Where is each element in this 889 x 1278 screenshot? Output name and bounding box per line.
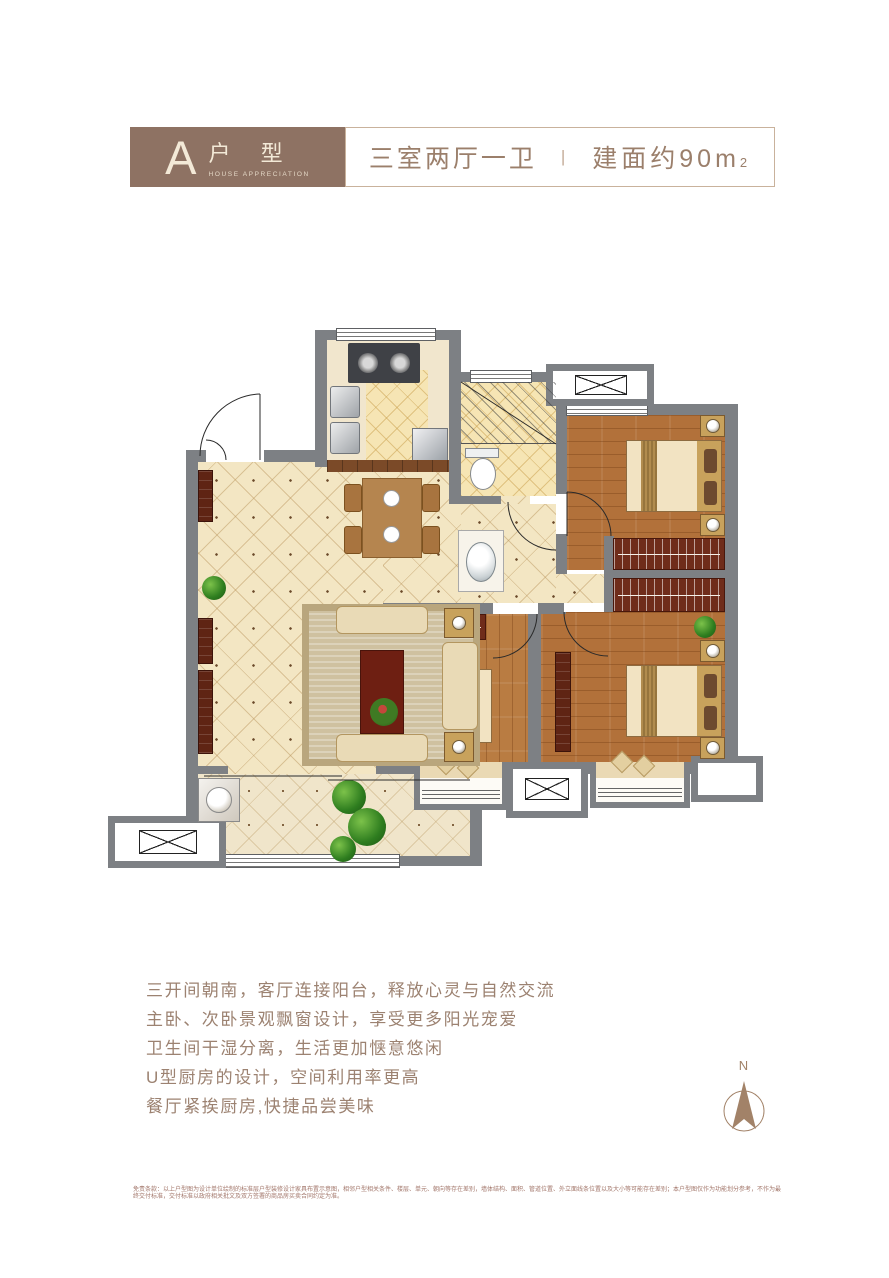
header: A 户 型 HOUSE APPRECIATION 三室两厅一卫 | 建面约90m…: [130, 127, 775, 187]
area-unit: m: [715, 145, 740, 174]
entry-door-arc: [200, 394, 260, 456]
type-text: 户 型 HOUSE APPRECIATION: [209, 136, 310, 178]
feature-line: 三开间朝南，客厅连接阳台，释放心灵与自然交流: [146, 982, 555, 1000]
type-label: 户 型: [209, 136, 295, 168]
type-letter: A: [165, 134, 196, 181]
feature-line: 主卧、次卧景观飘窗设计，享受更多阳光宠爱: [146, 1011, 555, 1029]
compass-icon: [714, 1073, 774, 1137]
bedroom1-door-arc: [567, 492, 611, 536]
feature-line: 卫生间干湿分离，生活更加惬意悠闲: [146, 1040, 555, 1058]
type-badge: A 户 型 HOUSE APPRECIATION: [130, 127, 345, 187]
entry-door-arc-small: [206, 440, 226, 460]
area-spec: 建面约90m2: [592, 139, 751, 175]
bedroom3-door-arc: [564, 612, 608, 656]
shower-glass-line: [461, 382, 556, 444]
disclaimer-text: 免责条款：以上户型图为设计单位绘制的标准层户型装修设计家具布置示意图，相邻户型相…: [133, 1187, 783, 1201]
layout-spec: 三室两厅一卫: [369, 139, 537, 175]
flyer-page: A 户 型 HOUSE APPRECIATION 三室两厅一卫 | 建面约90m…: [0, 0, 889, 1278]
feature-line: 餐厅紧挨厨房,快捷品尝美味: [146, 1098, 555, 1116]
area-sup: 2: [740, 155, 751, 170]
spec-box: 三室两厅一卫 | 建面约90m2: [345, 127, 775, 187]
bedroom2-door-arc: [493, 614, 537, 658]
floor-plan: [108, 330, 783, 878]
type-subtitle: HOUSE APPRECIATION: [209, 171, 310, 178]
area-value: 建面约90: [592, 139, 715, 175]
door-arcs: [108, 330, 783, 878]
feature-line: U型厨房的设计，空间利用率更高: [146, 1069, 555, 1087]
sliding-door-line: [204, 776, 470, 780]
feature-list: 三开间朝南，客厅连接阳台，释放心灵与自然交流 主卧、次卧景观飘窗设计，享受更多阳…: [146, 982, 555, 1127]
compass-north-label: N: [714, 1058, 774, 1073]
spec-divider: |: [561, 147, 568, 167]
bath-door-arc: [508, 502, 556, 550]
compass: N: [714, 1058, 774, 1142]
